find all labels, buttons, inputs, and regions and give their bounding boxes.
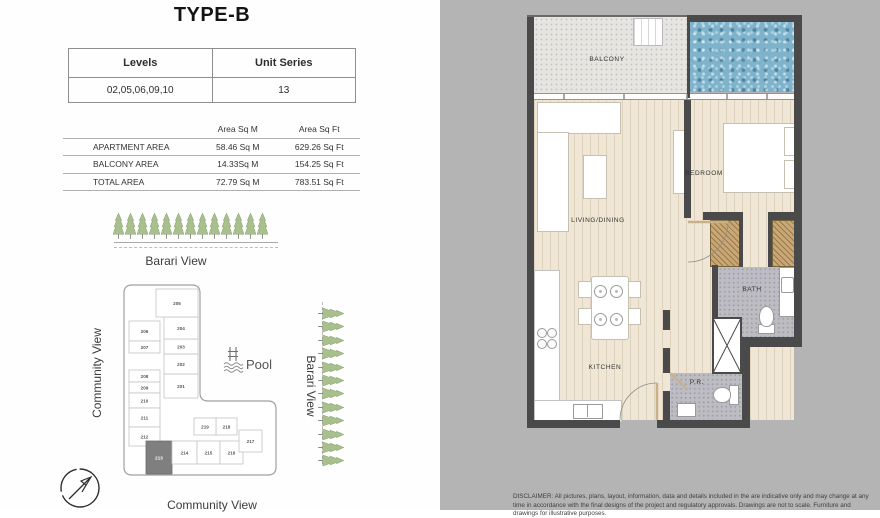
keyplan-unit-label: 205 [173, 301, 181, 306]
keyplan-unit-label: 217 [247, 439, 255, 444]
total-area-label: TOTAL AREA [63, 173, 197, 191]
tree-icon-rotated [320, 362, 346, 374]
keyplan-unit-label: 202 [177, 362, 185, 367]
tree-icon-rotated [320, 402, 346, 414]
keyplan-unit-label: 215 [205, 450, 213, 455]
living-dining-label: LIVING/DINING [563, 217, 633, 224]
tree-icon-rotated [320, 388, 346, 400]
place-setting [610, 285, 623, 298]
floor-plan-page: BALCONY LIVING/DINING BEDROOM KITCHEN BA… [440, 0, 880, 510]
area-sqm-header: Area Sq M [197, 121, 278, 138]
keyplan-unit-label: 210 [141, 398, 149, 403]
tree-icon [125, 211, 136, 241]
tree-icon-rotated [320, 455, 346, 467]
powder-sink [677, 403, 696, 417]
tree-icon [316, 335, 346, 346]
tree-icon [316, 442, 346, 453]
table-row: TOTAL AREA 72.79 Sq M 783.51 Sq Ft [63, 173, 360, 191]
dining-chair [578, 281, 592, 298]
tree-icon [316, 348, 346, 359]
wall-bedroom [684, 100, 691, 218]
wall-bottom-right [657, 420, 750, 428]
table-row: BALCONY AREA 14.33Sq M 154.25 Sq Ft [63, 156, 360, 174]
kitchen-sink [573, 404, 603, 419]
pool-icon [224, 347, 243, 372]
stove-burner [547, 328, 557, 338]
keyplan-unit-label: 201 [177, 384, 185, 389]
tree-icon [316, 362, 346, 373]
keyplan-unit-label: 219 [201, 424, 209, 429]
powder-room-label: P.R. [677, 379, 717, 386]
place-setting [610, 313, 623, 326]
key-plan: 2012022032042052062072082092102112122132… [120, 281, 300, 483]
pool-label: Pool [246, 357, 272, 372]
tree-icon [233, 211, 244, 241]
levels-value: 02,05,06,09,10 [69, 78, 213, 103]
balcony-edge [527, 15, 690, 17]
keyplan-unit-label: 211 [141, 415, 149, 420]
tree-icon [316, 321, 346, 332]
tree-icon [316, 429, 346, 440]
wall-corridor-right [768, 220, 772, 267]
tree-icon-rotated [320, 348, 346, 360]
apartment-area-label: APARTMENT AREA [63, 138, 197, 156]
page-title: TYPE-B [0, 4, 424, 27]
tree-icon [209, 211, 220, 241]
wall-right-lower [742, 337, 750, 428]
balcony-area-sqm: 14.33Sq M [197, 156, 278, 174]
wall-bath-left [712, 265, 718, 337]
place-setting [594, 313, 607, 326]
bath-sink [781, 277, 794, 293]
tree-icon-rotated [320, 308, 346, 320]
tree-icon-rotated [320, 415, 346, 427]
kitchen-counter [534, 270, 560, 404]
unit-series-value: 13 [212, 78, 356, 103]
unit-series-header: Unit Series [212, 49, 356, 78]
apartment-area-sqm: 58.46 Sq M [197, 138, 278, 156]
tree-icon [316, 455, 346, 466]
plunge-pool [690, 22, 794, 92]
tree-icon [257, 211, 268, 241]
wall-hall-1 [663, 310, 670, 330]
balcony-bench [633, 18, 663, 46]
stove-burner [537, 328, 547, 338]
wall-left [527, 15, 534, 428]
levels-header: Levels [69, 49, 213, 78]
place-setting [594, 285, 607, 298]
total-area-sqm: 72.79 Sq M [197, 173, 278, 191]
keyplan-unit-label: 212 [141, 434, 149, 439]
coffee-table [583, 155, 607, 199]
dining-chair [627, 308, 641, 325]
keyplan-unit-label: 208 [141, 374, 149, 379]
keyplan-unit-label: 206 [141, 329, 149, 334]
keyplan-unit-label: 207 [141, 345, 149, 350]
tree-icon [173, 211, 184, 241]
window-sill [534, 93, 794, 100]
tree-icon-rotated [320, 442, 346, 454]
tree-icon-rotated [320, 429, 346, 441]
tree-icon [113, 211, 124, 241]
wall-bottom-left [527, 420, 620, 428]
tree-icon [245, 211, 256, 241]
levels-table: Levels Unit Series 02,05,06,09,10 13 [68, 48, 356, 103]
wardrobe [710, 220, 740, 267]
wall-pr-left-upper [663, 348, 670, 373]
compass-icon [55, 462, 109, 512]
keyplan-unit-label: 213 [155, 455, 163, 460]
tree-icon [316, 388, 346, 399]
balcony-label: BALCONY [572, 56, 642, 63]
tree-icon [316, 308, 346, 319]
tree-icon [161, 211, 172, 241]
tree-icon [316, 402, 346, 413]
balcony-area-sqft: 154.25 Sq Ft [278, 156, 360, 174]
keyplan-unit-label: 204 [177, 326, 185, 331]
kitchen-label: KITCHEN [575, 364, 635, 371]
toilet [713, 387, 731, 403]
disclaimer-text: DISCLAIMER: All pictures, plans, layout,… [513, 493, 875, 518]
keyplan-unit-label: 214 [181, 450, 189, 455]
wall-pool-divider [687, 15, 690, 98]
community-view-label-left: Community View [90, 298, 104, 448]
wall-right-upper [794, 15, 802, 347]
brochure-left-page: TYPE-B Levels Unit Series 02,05,06,09,10… [0, 0, 440, 510]
tree-icon [221, 211, 232, 241]
sofa [537, 102, 621, 134]
tree-icon [316, 375, 346, 386]
tree-icon-rotated [320, 375, 346, 387]
road-dashed-line [114, 247, 278, 248]
tree-icon [185, 211, 196, 241]
wall-wardrobe-1 [703, 212, 743, 220]
tree-icon [197, 211, 208, 241]
tree-icon-rotated [320, 321, 346, 333]
area-header-spacer [63, 121, 197, 138]
bedroom-label: BEDROOM [672, 170, 736, 177]
road-line [114, 242, 278, 243]
bath-label: BATH [727, 286, 777, 293]
tree-icon [149, 211, 160, 241]
area-sqft-header: Area Sq Ft [278, 121, 360, 138]
keyplan-unit-label: 218 [223, 424, 231, 429]
keyplan-unit-label: 203 [177, 344, 185, 349]
wall-pr-left-lower [663, 391, 670, 420]
wall-wardrobe-2 [768, 212, 802, 220]
toilet [759, 306, 774, 327]
dining-chair [578, 308, 592, 325]
apartment-area-sqft: 629.26 Sq Ft [278, 138, 360, 156]
keyplan-unit-label: 216 [228, 450, 236, 455]
stove-burner [547, 339, 557, 349]
total-area-sqft: 783.51 Sq Ft [278, 173, 360, 191]
dining-chair [627, 281, 641, 298]
wall-corridor-left [739, 220, 743, 267]
tree-row-icons [113, 211, 281, 241]
tree-icon [316, 415, 346, 426]
balcony-area-label: BALCONY AREA [63, 156, 197, 174]
tree-icon-rotated [320, 335, 346, 347]
area-table: Area Sq M Area Sq Ft APARTMENT AREA 58.4… [63, 121, 360, 191]
stove-burner [537, 339, 547, 349]
sink-divider [587, 404, 588, 417]
table-row: 02,05,06,09,10 13 [69, 78, 356, 103]
floor-plan: BALCONY LIVING/DINING BEDROOM KITCHEN BA… [527, 15, 802, 428]
keyplan-unit-label: 209 [141, 385, 149, 390]
table-row: APARTMENT AREA 58.46 Sq M 629.26 Sq Ft [63, 138, 360, 156]
tree-icon [137, 211, 148, 241]
wall-pool-top [687, 15, 802, 22]
barari-view-label-top: Barari View [116, 254, 236, 268]
